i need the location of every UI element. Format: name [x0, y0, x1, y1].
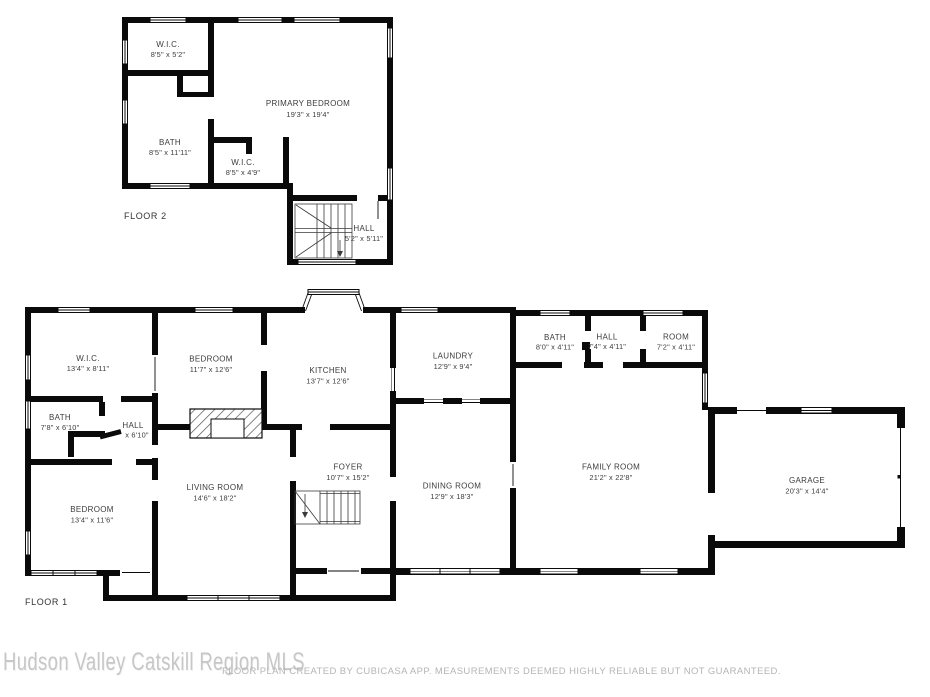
svg-text:7'8" x 6'10": 7'8" x 6'10" [41, 423, 80, 432]
svg-text:7'4" x 4'11": 7'4" x 4'11" [588, 342, 626, 351]
window [643, 311, 683, 316]
window [540, 311, 570, 316]
room-label-wic-upper: W.I.C. 8'5" x 5'2" [151, 40, 186, 59]
svg-text:13'4" x 8'11": 13'4" x 8'11" [67, 364, 110, 373]
svg-text:21'2" x 22'8": 21'2" x 22'8" [589, 473, 632, 482]
svg-text:W.I.C.: W.I.C. [231, 158, 255, 167]
svg-text:10'7" x 15'2": 10'7" x 15'2" [326, 473, 369, 482]
room-label-wic-2: W.I.C. 8'5" x 4'9" [226, 158, 261, 177]
room-label-room: ROOM 7'2" x 4'11" [657, 333, 695, 352]
svg-text:14'6" x 18'2": 14'6" x 18'2" [193, 494, 236, 503]
garage-door [898, 428, 902, 527]
room-label-hall-main: HALL x 6'10" [122, 421, 149, 440]
window [640, 569, 678, 574]
window [187, 596, 280, 601]
svg-text:8'5" x 5'2": 8'5" x 5'2" [151, 50, 186, 59]
svg-text:DINING ROOM: DINING ROOM [423, 482, 481, 491]
svg-text:19'3" x 19'4": 19'3" x 19'4" [286, 110, 329, 119]
window [238, 18, 282, 23]
window [26, 531, 31, 555]
svg-text:13'4" x 11'6": 13'4" x 11'6" [71, 516, 114, 525]
svg-text:GARAGE: GARAGE [789, 476, 825, 485]
cubicasa-disclaimer: FLOOR PLAN CREATED BY CUBICASA APP. MEAS… [222, 666, 781, 677]
floor-plan-page: W.I.C. 8'5" x 5'2" BATH 8'5" x 11'11" PR… [0, 0, 930, 697]
svg-text:HALL: HALL [596, 333, 617, 342]
floor-2-plan: W.I.C. 8'5" x 5'2" BATH 8'5" x 11'11" PR… [122, 17, 393, 265]
room-label-foyer: FOYER 10'7" x 15'2" [326, 463, 369, 483]
window [294, 18, 340, 23]
svg-text:12'9" x 9'4": 12'9" x 9'4" [434, 362, 473, 371]
room-label-laundry: LAUNDRY 12'9" x 9'4" [433, 352, 474, 372]
svg-text:13'7" x 12'6": 13'7" x 12'6" [306, 377, 349, 386]
room-label-primary-bedroom: PRIMARY BEDROOM 19'3" x 19'4" [266, 99, 350, 119]
window [703, 373, 708, 403]
svg-text:20'3" x 14'4": 20'3" x 14'4" [785, 487, 828, 496]
svg-text:12'9" x 18'3": 12'9" x 18'3" [430, 492, 473, 501]
room-label-bedroom-top: BEDROOM 11'7" x 12'6" [189, 355, 232, 375]
room-label-family-room: FAMILY ROOM 21'2" x 22'8" [582, 463, 640, 483]
staircase-upper [295, 204, 352, 258]
window [26, 355, 31, 380]
window [123, 40, 128, 64]
floor-plan-drawing: W.I.C. 8'5" x 5'2" BATH 8'5" x 11'11" PR… [0, 0, 930, 697]
svg-text:7'2" x 4'11": 7'2" x 4'11" [657, 343, 695, 352]
firebox [211, 419, 244, 438]
svg-text:LAUNDRY: LAUNDRY [433, 352, 474, 361]
svg-text:x 6'10": x 6'10" [125, 431, 149, 440]
room-label-hall-right: HALL 7'4" x 4'11" [588, 333, 626, 352]
window [195, 308, 233, 313]
svg-text:5'2" x 5'11": 5'2" x 5'11" [345, 234, 383, 243]
floor-1-plan: W.I.C. 13'4" x 8'11" BATH 7'8" x 6'10" H… [25, 290, 905, 608]
window [388, 28, 393, 58]
window [150, 184, 190, 189]
window [58, 308, 90, 313]
svg-text:HALL: HALL [353, 224, 374, 233]
door-leaves [100, 357, 766, 573]
window [801, 408, 832, 413]
staircase-lower [295, 491, 360, 524]
floor-2-label: FLOOR 2 [124, 211, 167, 221]
window [123, 100, 128, 124]
bay-window [302, 290, 366, 312]
window [401, 308, 438, 313]
floor-1-label: FLOOR 1 [25, 597, 68, 607]
window [31, 571, 97, 576]
fireplace [190, 409, 262, 438]
room-label-bath-right: BATH 8'0" x 4'11" [536, 333, 574, 352]
svg-text:BEDROOM: BEDROOM [189, 355, 232, 364]
window [298, 260, 356, 265]
room-label-garage: GARAGE 20'3" x 14'4" [785, 476, 828, 496]
svg-text:BEDROOM: BEDROOM [70, 505, 113, 514]
window [540, 569, 578, 574]
svg-text:W.I.C.: W.I.C. [156, 40, 180, 49]
window [150, 18, 186, 23]
room-label-bath-upper: BATH 8'5" x 11'11" [149, 138, 191, 157]
svg-text:11'7" x 12'6": 11'7" x 12'6" [190, 365, 233, 374]
room-label-wic-main: W.I.C. 13'4" x 8'11" [67, 354, 110, 373]
svg-text:8'0" x 4'11": 8'0" x 4'11" [536, 343, 574, 352]
svg-text:FAMILY ROOM: FAMILY ROOM [582, 463, 640, 472]
window [410, 569, 500, 574]
svg-text:BATH: BATH [49, 413, 71, 422]
svg-text:ROOM: ROOM [663, 333, 689, 342]
svg-text:KITCHEN: KITCHEN [309, 366, 346, 375]
svg-text:FOYER: FOYER [333, 463, 362, 472]
svg-text:8'5" x 11'11": 8'5" x 11'11" [149, 148, 191, 157]
svg-text:BATH: BATH [159, 138, 181, 147]
svg-text:BATH: BATH [544, 333, 566, 342]
svg-text:W.I.C.: W.I.C. [76, 354, 100, 363]
stair-arrow [302, 512, 308, 518]
window [26, 401, 31, 429]
window [388, 168, 393, 200]
room-label-hall-upper: HALL 5'2" x 5'11" [345, 224, 383, 243]
room-label-bath-main: BATH 7'8" x 6'10" [41, 413, 80, 432]
room-label-living-room: LIVING ROOM 14'6" x 18'2" [187, 483, 244, 503]
room-label-dining-room: DINING ROOM 12'9" x 18'3" [423, 482, 481, 502]
svg-text:8'5" x 4'9": 8'5" x 4'9" [226, 168, 261, 177]
room-label-kitchen: KITCHEN 13'7" x 12'6" [306, 366, 349, 386]
room-label-bedroom-left: BEDROOM 13'4" x 11'6" [70, 505, 113, 525]
svg-text:PRIMARY BEDROOM: PRIMARY BEDROOM [266, 99, 350, 108]
svg-text:LIVING ROOM: LIVING ROOM [187, 483, 244, 492]
svg-text:HALL: HALL [122, 421, 143, 430]
